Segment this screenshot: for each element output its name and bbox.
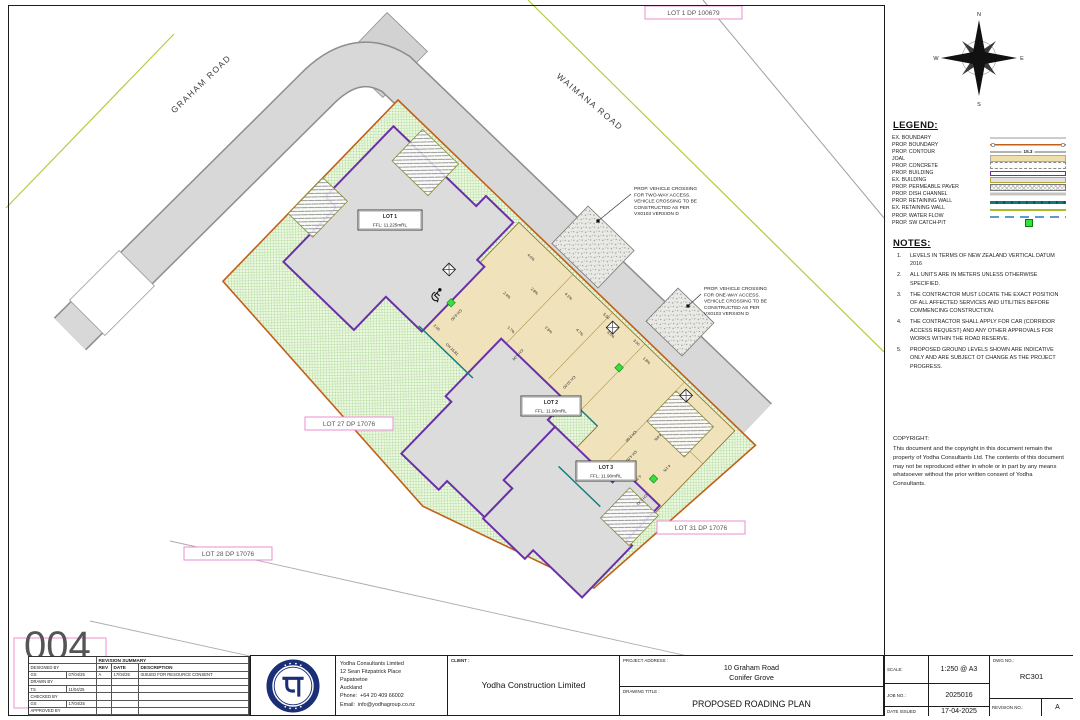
svg-text:FFL: 11.90mRL: FFL: 11.90mRL xyxy=(535,409,567,414)
svg-text:PROP. VEHICLE CROSSINGFOR ONE-: PROP. VEHICLE CROSSINGFOR ONE-WAY ACCESS… xyxy=(704,286,767,317)
signoff-initials: GS xyxy=(29,672,67,679)
copyright-text: This document and the copyright in this … xyxy=(893,445,1065,489)
ex-retaining-swatch xyxy=(990,209,1066,212)
revision-cell xyxy=(112,701,139,708)
company-email-label: Email: xyxy=(340,701,355,709)
svg-text:LOT 28 DP 17076: LOT 28 DP 17076 xyxy=(202,551,255,558)
notes-items: 1.LEVELS IN TERMS OF NEW ZEALAND VERTICA… xyxy=(885,252,1073,371)
legend-item: EX. BUILDING xyxy=(885,177,1073,184)
drawing-title-label: DRAWING TITLE : xyxy=(623,689,660,694)
legend-item-label: PROP. CONCRETE xyxy=(892,163,938,169)
vehicle-crossing-annotation: PROP. VEHICLE CROSSINGFOR TWO-WAY ACCESS… xyxy=(596,186,697,223)
dp-parcel-label: LOT 28 DP 17076 xyxy=(184,547,272,560)
project-cell: PROJECT ADDRESS : 10 Graham Road Conifer… xyxy=(619,656,883,715)
revision-table: REVISION SUMMARYDESIGNED BYREVDATEDESCRI… xyxy=(28,656,250,716)
legend-item-label: EX. RETAINING WALL xyxy=(892,205,945,211)
revision-rev: A xyxy=(97,672,112,679)
legend-item: PROP. BUILDING xyxy=(885,169,1073,176)
signoff-role: APPROVED BY xyxy=(29,708,97,715)
note-text: LEVELS IN TERMS OF NEW ZEALAND VERTICAL … xyxy=(910,252,1065,269)
legend-item: EX. RETAINING WALL xyxy=(885,205,1073,212)
legend-item-label: JOAL xyxy=(892,156,905,162)
revision-col-header: DATE xyxy=(112,664,139,671)
scale-value: 1:250 @ A3 xyxy=(929,656,989,683)
client-label: CLIENT : xyxy=(451,658,470,663)
revision-cell xyxy=(139,708,249,715)
revision-col-header: DESCRIPTION xyxy=(139,664,249,671)
note-text: THE CONTRACTOR MUST LOCATE THE EXACT POS… xyxy=(910,291,1065,316)
date-issued-value: 17-04-2025 xyxy=(929,707,989,716)
revision-cell xyxy=(29,657,97,664)
bottom-strip: Yodha Consultants Limited 12 Sean Fitzpa… xyxy=(250,655,884,716)
revision-cell xyxy=(97,708,112,715)
svg-text:LOT 2: LOT 2 xyxy=(544,400,558,406)
legend-item: PROP. CONTOUR15.3 xyxy=(885,148,1073,155)
legend-item-label: PROP. RETAINING WALL xyxy=(892,198,952,204)
signoff-initials: GS xyxy=(29,701,67,708)
client-cell: CLIENT : Yodha Construction Limited xyxy=(447,656,619,715)
compass-rose-icon: N E S W xyxy=(886,6,1072,114)
prop-retaining-swatch xyxy=(990,201,1066,204)
project-address-line1: 10 Graham Road xyxy=(620,663,883,673)
client-name: Yodha Construction Limited xyxy=(448,680,619,690)
company-name: Yodha Consultants Limited xyxy=(340,660,443,668)
note-item: 4.THE CONTRACTOR SHALL APPLY FOR CAR (CO… xyxy=(897,318,1065,343)
svg-text:LOT 1 DP 100679: LOT 1 DP 100679 xyxy=(667,10,720,17)
legend-item: JOAL xyxy=(885,155,1073,162)
company-address3: Auckland xyxy=(340,684,443,692)
drawing-sheet: 4.0%2.8%4.1%2.4%1.7%2.5%4.7%3.0%1.8%4.6%… xyxy=(0,0,1080,720)
revision-cell xyxy=(139,686,249,693)
legend-item-label: PROP. BUILDING xyxy=(892,170,933,176)
joal-swatch xyxy=(990,155,1066,162)
note-item: 1.LEVELS IN TERMS OF NEW ZEALAND VERTICA… xyxy=(897,252,1065,269)
logo-cell xyxy=(251,656,335,715)
right-panel: N E S W LEGEND: EX. BOUNDARYPROP. BOUNDA… xyxy=(884,5,1073,716)
prop-concrete-swatch xyxy=(990,162,1066,169)
revision-summary-title: REVISION SUMMARY xyxy=(97,657,249,664)
company-phone: +64 20 409 66002 xyxy=(360,692,404,700)
date-issued-label: DATE ISSUED xyxy=(885,707,929,716)
legend-item-label: PROP. BOUNDARY xyxy=(892,142,938,148)
revision-cell xyxy=(97,693,112,700)
lot-ffl-label: LOT 1FFL: 11.225mRL xyxy=(358,210,422,230)
note-item: 5.PROPOSED GROUND LEVELS SHOWN ARE INDIC… xyxy=(897,346,1065,371)
scale-label: SCALE: xyxy=(885,656,929,683)
svg-text:FFL: 11.90mRL: FFL: 11.90mRL xyxy=(590,474,622,479)
legend-item-label: EX. BOUNDARY xyxy=(892,135,931,141)
signoff-date: 11/04/25 xyxy=(67,686,97,693)
dp-parcel-label: LOT 27 DP 17076 xyxy=(305,417,393,430)
catch-pit-swatch xyxy=(990,219,1066,227)
lot-ffl-label: LOT 3FFL: 11.90mRL xyxy=(576,461,636,481)
revision-cell xyxy=(112,679,139,686)
revision-date: 17/04/25 xyxy=(112,672,139,679)
note-text: THE CONTRACTOR SHALL APPLY FOR CAR (CORR… xyxy=(910,318,1065,343)
legend-box: LEGEND: EX. BOUNDARYPROP. BOUNDARYPROP. … xyxy=(885,115,1073,234)
title-block: SCALE: 1:250 @ A3 JOB NO.: 2025016 DATE … xyxy=(885,655,1073,716)
note-number: 2. xyxy=(897,271,910,288)
dish-channel-swatch xyxy=(990,190,1066,198)
project-address-line2: Conifer Grove xyxy=(620,673,883,683)
revision-cell xyxy=(139,701,249,708)
revision-no-label: REVISION NO.: xyxy=(990,699,1042,716)
revision-description: ISSUED FOR RESOURCE CONSENT xyxy=(139,672,249,679)
revision-no-value: A xyxy=(1042,699,1073,716)
revision-cell xyxy=(97,701,112,708)
company-email: info@yodhagroup.co.nz xyxy=(358,701,415,709)
dp-parcel-label: LOT 31 DP 17076 xyxy=(657,521,745,534)
company-phone-label: Phone: xyxy=(340,692,357,700)
legend-item-label: PROP. PERMEABLE PAVER xyxy=(892,184,959,190)
dwg-no-value: RC301 xyxy=(990,672,1073,681)
compass-e: E xyxy=(1020,56,1024,62)
north-arrow-box: N E S W xyxy=(885,5,1073,116)
revision-cell xyxy=(112,686,139,693)
signoff-date: 07/04/25 xyxy=(67,672,97,679)
company-info: Yodha Consultants Limited 12 Sean Fitzpa… xyxy=(335,656,447,715)
revision-col-header: REV xyxy=(97,664,112,671)
legend-item: PROP. CONCRETE xyxy=(885,162,1073,169)
note-text: ALL UNITS ARE IN METERS UNLESS OTHERWISE… xyxy=(910,271,1065,288)
signoff-role: CHECKED BY xyxy=(29,693,97,700)
dp-parcel-label: LOT 1 DP 100679 xyxy=(645,6,742,19)
company-address1: 12 Sean Fitzpatrick Place xyxy=(340,668,443,676)
road-label-waimana: WAIMANA ROAD xyxy=(555,71,625,132)
svg-text:FFL: 11.225mRL: FFL: 11.225mRL xyxy=(373,223,408,228)
copyright-box: COPYRIGHT: This document and the copyrig… xyxy=(885,430,1073,656)
legend-title: LEGEND: xyxy=(893,120,1065,131)
svg-text:LOT 3: LOT 3 xyxy=(599,465,613,471)
signoff-initials: TS xyxy=(29,686,67,693)
revision-cell xyxy=(112,708,139,715)
note-number: 4. xyxy=(897,318,910,343)
svg-text:LOT 27 DP 17076: LOT 27 DP 17076 xyxy=(323,421,376,428)
note-item: 3.THE CONTRACTOR MUST LOCATE THE EXACT P… xyxy=(897,291,1065,316)
lot-ffl-label: LOT 2FFL: 11.90mRL xyxy=(521,396,581,416)
svg-text:LOT 1: LOT 1 xyxy=(383,214,397,220)
svg-text:PROP. VEHICLE CROSSINGFOR TWO-: PROP. VEHICLE CROSSINGFOR TWO-WAY ACCESS… xyxy=(634,186,697,217)
company-address2: Papatoetoe xyxy=(340,676,443,684)
site-plan: 4.0%2.8%4.1%2.4%1.7%2.5%4.7%3.0%1.8%4.6%… xyxy=(0,0,884,720)
legend-item: PROP. RETAINING WALL xyxy=(885,198,1073,205)
site-parcel: 4.0%2.8%4.1%2.4%1.7%2.5%4.7%3.0%1.8%4.6%… xyxy=(207,100,756,643)
revision-cell xyxy=(97,686,112,693)
compass-s: S xyxy=(977,102,981,108)
compass-w: W xyxy=(933,56,939,62)
ex-building-swatch xyxy=(990,177,1066,183)
note-number: 5. xyxy=(897,346,910,371)
revision-cell xyxy=(139,693,249,700)
legend-item-label: PROP. DISH CHANNEL xyxy=(892,191,948,197)
copyright-title: COPYRIGHT: xyxy=(893,435,1065,444)
legend-item-label: EX. BUILDING xyxy=(892,177,926,183)
notes-box: NOTES: 1.LEVELS IN TERMS OF NEW ZEALAND … xyxy=(885,233,1073,431)
note-item: 2.ALL UNITS ARE IN METERS UNLESS OTHERWI… xyxy=(897,271,1065,288)
compass-n: N xyxy=(977,12,981,18)
legend-item-label: PROP. WATER FLOW xyxy=(892,213,944,219)
note-number: 3. xyxy=(897,291,910,316)
revision-cell xyxy=(97,679,112,686)
revision-cell xyxy=(139,679,249,686)
signoff-role: DESIGNED BY xyxy=(29,664,97,671)
drawing-title: PROPOSED ROADING PLAN xyxy=(620,699,883,709)
job-no-label: JOB NO.: xyxy=(885,684,929,706)
legend-item-label: PROP. CONTOUR xyxy=(892,149,935,155)
legend-item: PROP. SW CATCH-PIT xyxy=(885,219,1073,226)
signoff-date: 17/04/25 xyxy=(67,701,97,708)
prop-building-swatch xyxy=(990,171,1066,176)
job-no-value: 2025016 xyxy=(929,684,989,706)
legend-item: PROP. DISH CHANNEL xyxy=(885,191,1073,198)
revision-cell xyxy=(112,693,139,700)
yodha-logo-icon xyxy=(266,659,320,713)
road-label-graham: GRAHAM ROAD xyxy=(169,53,233,116)
note-text: PROPOSED GROUND LEVELS SHOWN ARE INDICAT… xyxy=(910,346,1065,371)
note-number: 1. xyxy=(897,252,910,269)
signoff-role: DRAWN BY xyxy=(29,679,97,686)
legend-items: EX. BOUNDARYPROP. BOUNDARYPROP. CONTOUR1… xyxy=(885,134,1073,226)
legend-item-label: PROP. SW CATCH-PIT xyxy=(892,220,946,226)
notes-title: NOTES: xyxy=(893,238,1065,249)
dwg-no-label: DWG NO.: xyxy=(993,658,1014,663)
svg-text:LOT 31 DP 17076: LOT 31 DP 17076 xyxy=(675,525,728,532)
